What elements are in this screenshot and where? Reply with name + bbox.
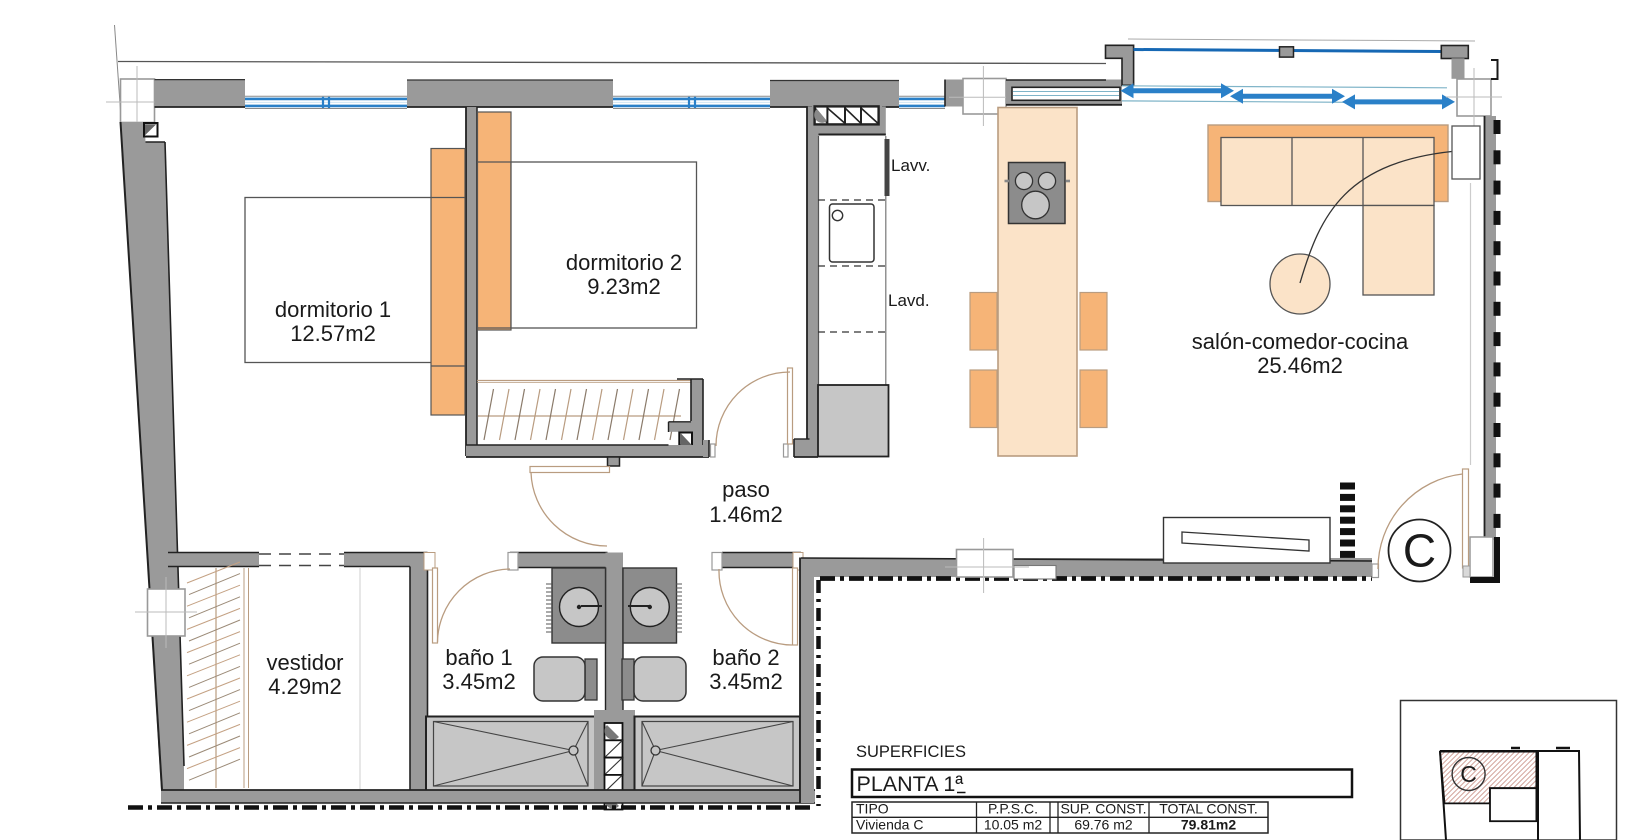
svg-text:12.57m2: 12.57m2 — [290, 321, 376, 346]
svg-text:dormitorio 2: dormitorio 2 — [566, 250, 682, 275]
svg-text:Lavd.: Lavd. — [888, 291, 930, 310]
svg-text:Lavv.: Lavv. — [891, 156, 930, 175]
svg-text:69.76 m2: 69.76 m2 — [1074, 817, 1133, 833]
svg-text:3.45m2: 3.45m2 — [709, 669, 782, 694]
svg-text:25.46m2: 25.46m2 — [1257, 353, 1343, 378]
svg-text:C: C — [1460, 761, 1477, 787]
svg-text:4.29m2: 4.29m2 — [268, 674, 341, 699]
svg-text:SUP. CONST.: SUP. CONST. — [1060, 801, 1146, 817]
svg-text:baño 2: baño 2 — [712, 645, 779, 670]
svg-text:9.23m2: 9.23m2 — [587, 274, 660, 299]
svg-text:C: C — [1403, 525, 1436, 577]
svg-text:TIPO: TIPO — [856, 801, 889, 817]
svg-text:vestidor: vestidor — [266, 650, 343, 675]
svg-text:SUPERFICIES: SUPERFICIES — [856, 743, 966, 761]
svg-text:1.46m2: 1.46m2 — [709, 502, 782, 527]
svg-text:TOTAL CONST.: TOTAL CONST. — [1159, 801, 1258, 817]
svg-text:P.P.S.C.: P.P.S.C. — [988, 801, 1038, 817]
svg-text:PLANTA 1ª: PLANTA 1ª — [857, 772, 965, 796]
svg-text:dormitorio 1: dormitorio 1 — [275, 297, 391, 322]
svg-text:baño 1: baño 1 — [445, 645, 512, 670]
svg-text:Vivienda C: Vivienda C — [856, 817, 923, 833]
svg-text:salón-comedor-cocina: salón-comedor-cocina — [1192, 329, 1409, 354]
svg-text:3.45m2: 3.45m2 — [442, 669, 515, 694]
svg-text:79.81m2: 79.81m2 — [1181, 817, 1236, 833]
svg-text:10.05 m2: 10.05 m2 — [984, 817, 1043, 833]
svg-text:paso: paso — [722, 477, 770, 502]
